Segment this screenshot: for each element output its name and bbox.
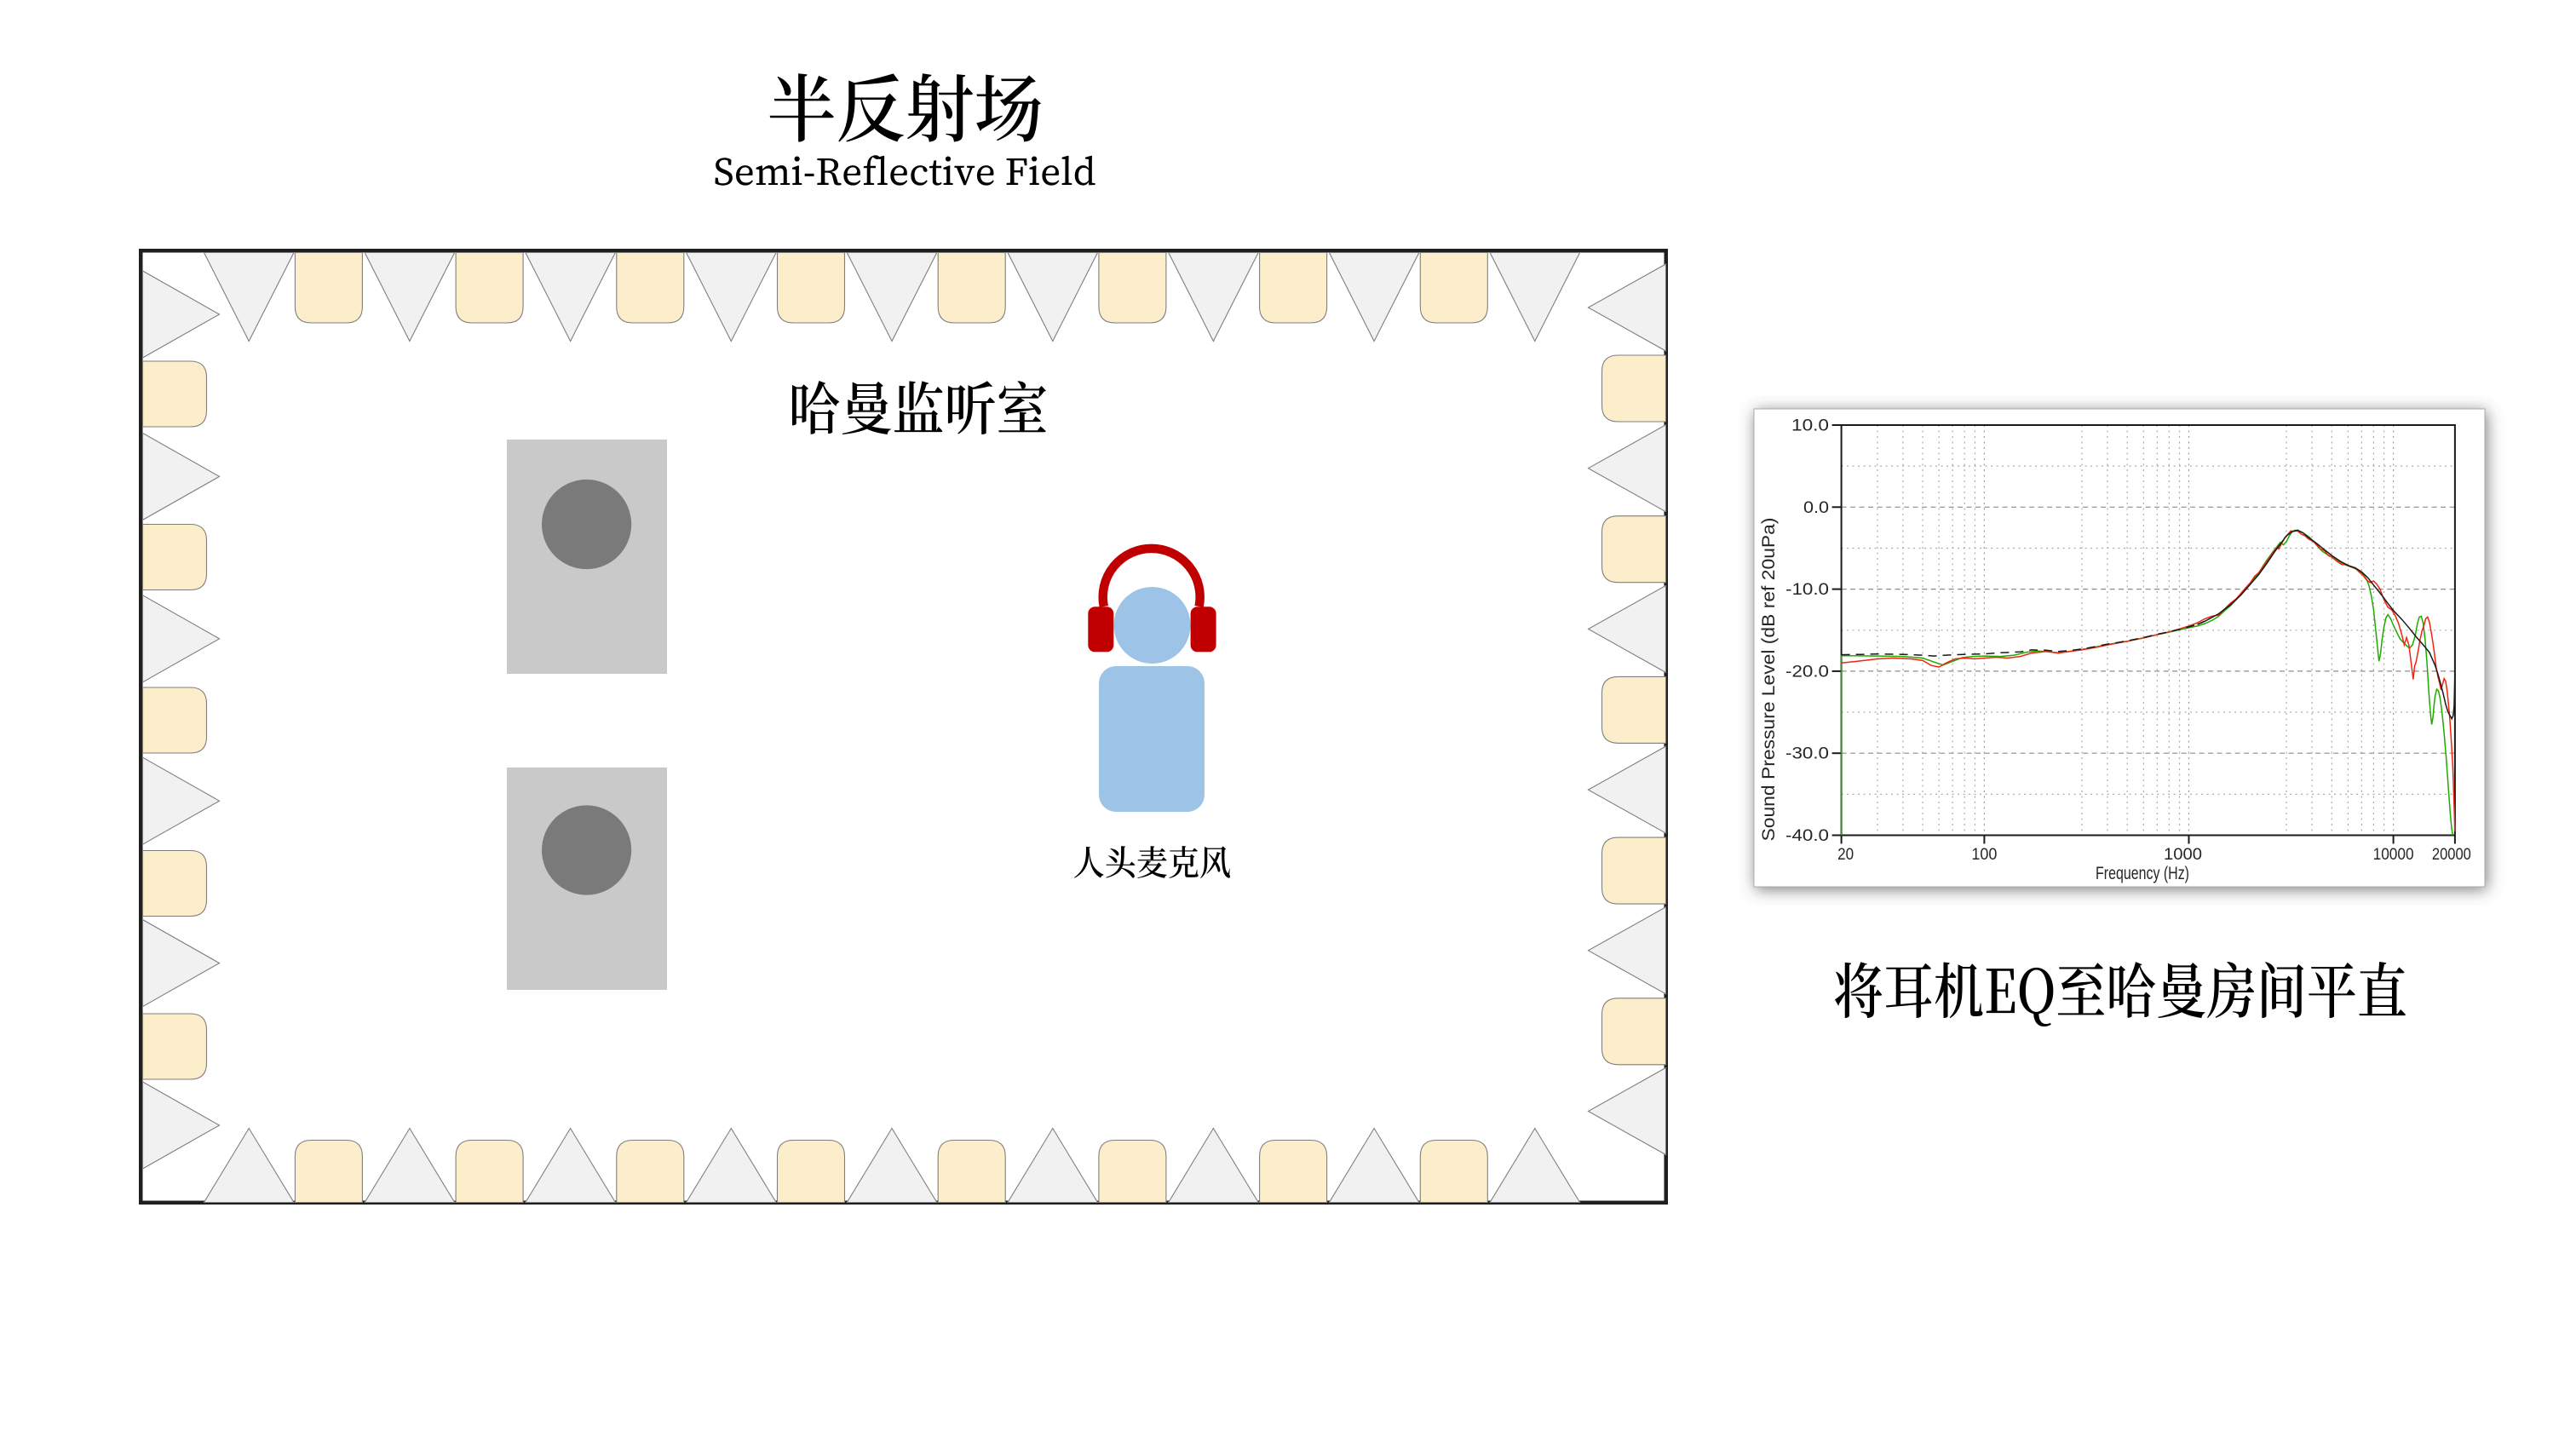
svg-text:100: 100 — [1971, 846, 1997, 864]
svg-text:-40.0: -40.0 — [1785, 827, 1829, 845]
svg-text:20000: 20000 — [2432, 846, 2471, 864]
svg-text:1000: 1000 — [2164, 846, 2202, 864]
svg-text:10.0: 10.0 — [1791, 417, 1829, 435]
svg-text:Frequency (Hz): Frequency (Hz) — [2096, 864, 2189, 883]
svg-text:-30.0: -30.0 — [1785, 745, 1829, 763]
svg-text:-20.0: -20.0 — [1785, 663, 1829, 681]
svg-text:-10.0: -10.0 — [1785, 581, 1829, 599]
svg-text:10000: 10000 — [2373, 846, 2414, 864]
svg-text:0.0: 0.0 — [1803, 499, 1829, 517]
svg-text:Sound Pressure Level (dB ref 2: Sound Pressure Level (dB ref 20uPa) — [1759, 518, 1779, 842]
svg-text:20: 20 — [1837, 846, 1854, 864]
